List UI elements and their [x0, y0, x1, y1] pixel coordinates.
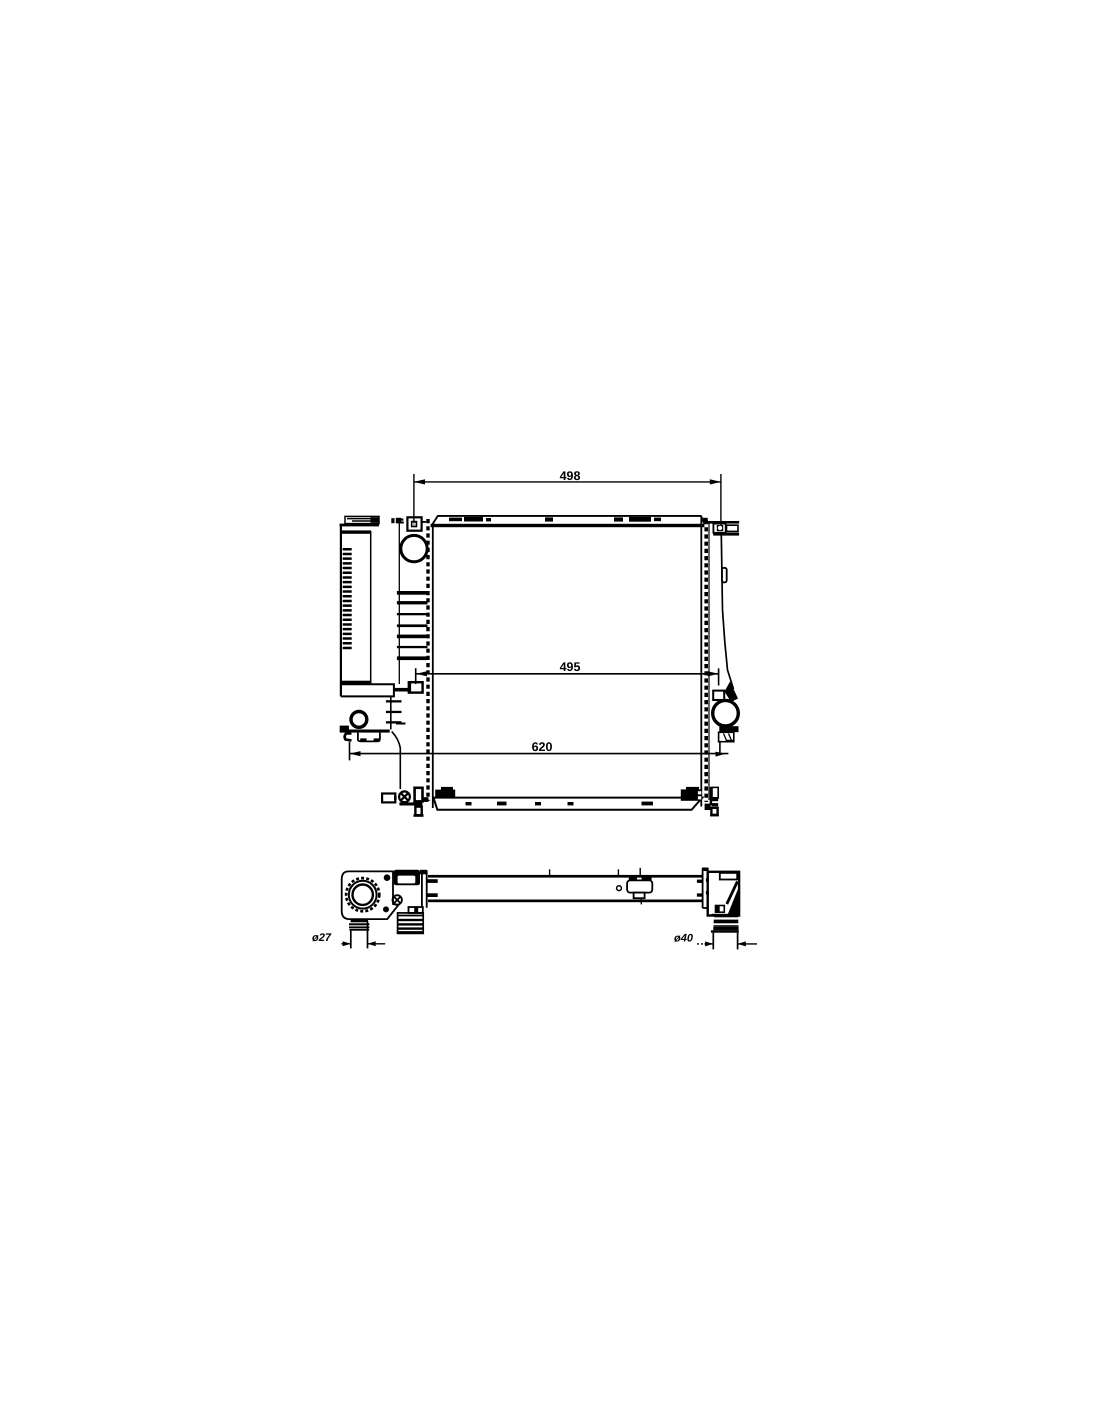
- svg-text:ø40: ø40: [674, 933, 694, 945]
- svg-text:620: 620: [532, 740, 553, 754]
- svg-text:495: 495: [560, 660, 581, 674]
- svg-text:ø27: ø27: [312, 932, 332, 944]
- svg-text:498: 498: [560, 469, 581, 483]
